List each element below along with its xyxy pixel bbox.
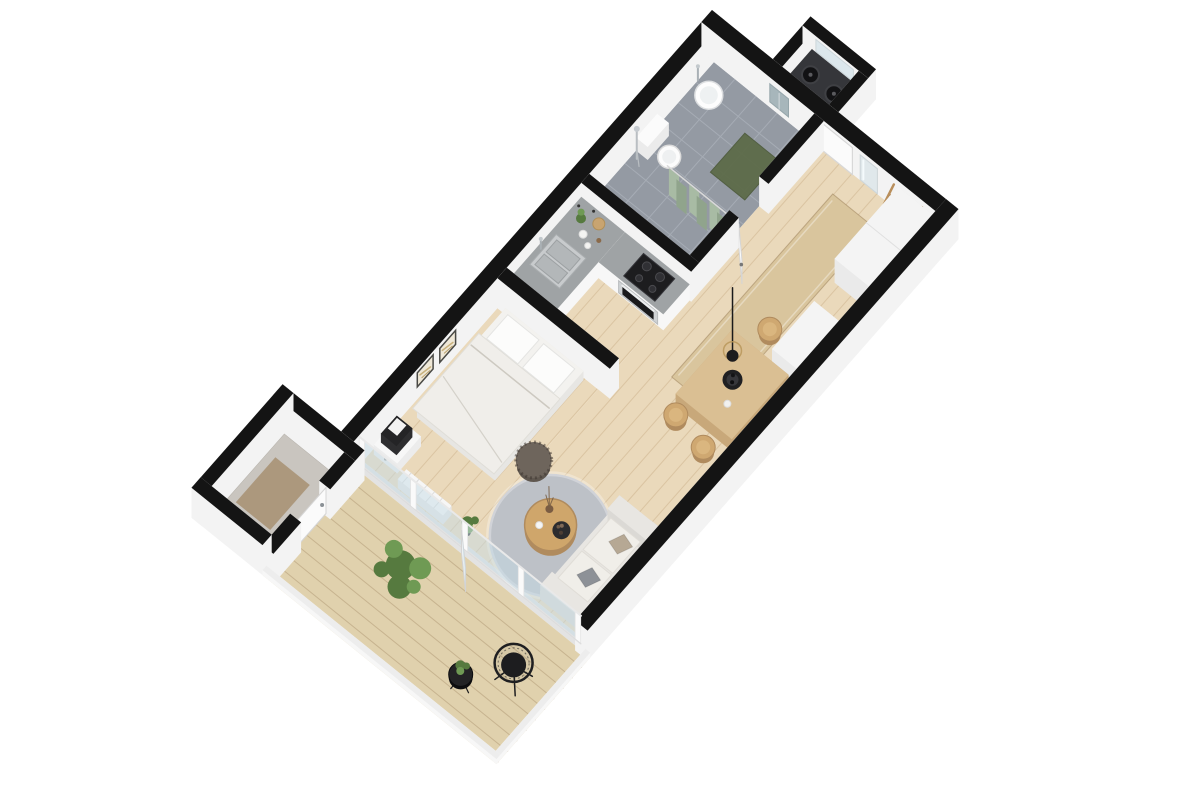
floor-plan-canvas bbox=[0, 0, 1200, 800]
candle bbox=[536, 522, 543, 529]
floor-plan-3d-render bbox=[0, 0, 1200, 800]
floor-pouf bbox=[516, 442, 552, 482]
serving-tray bbox=[552, 521, 570, 539]
dining-chair-a bbox=[758, 317, 782, 345]
dining-chair-c bbox=[691, 435, 715, 463]
dining-chair-b bbox=[664, 403, 688, 431]
